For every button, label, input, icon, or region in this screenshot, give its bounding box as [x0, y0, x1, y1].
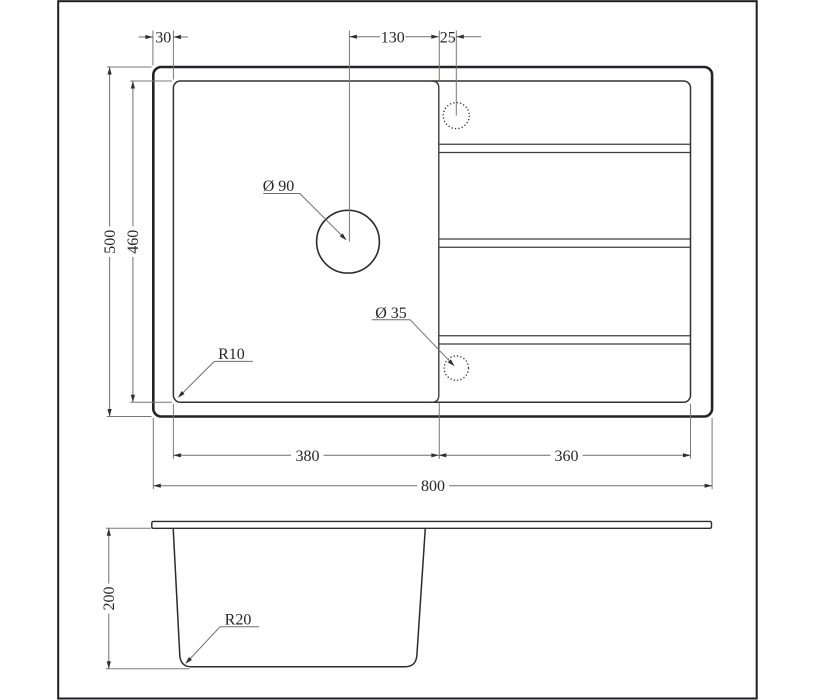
svg-text:380: 380 [296, 448, 320, 465]
svg-text:460: 460 [125, 230, 142, 254]
svg-text:800: 800 [421, 478, 445, 495]
svg-text:R20: R20 [225, 611, 252, 628]
svg-text:500: 500 [102, 230, 119, 254]
svg-text:Ø 90: Ø 90 [263, 178, 295, 195]
svg-text:130: 130 [381, 29, 405, 46]
svg-text:200: 200 [101, 587, 118, 611]
svg-text:25: 25 [440, 29, 456, 46]
svg-text:30: 30 [155, 29, 171, 46]
svg-text:R10: R10 [218, 346, 245, 363]
svg-text:360: 360 [555, 448, 579, 465]
